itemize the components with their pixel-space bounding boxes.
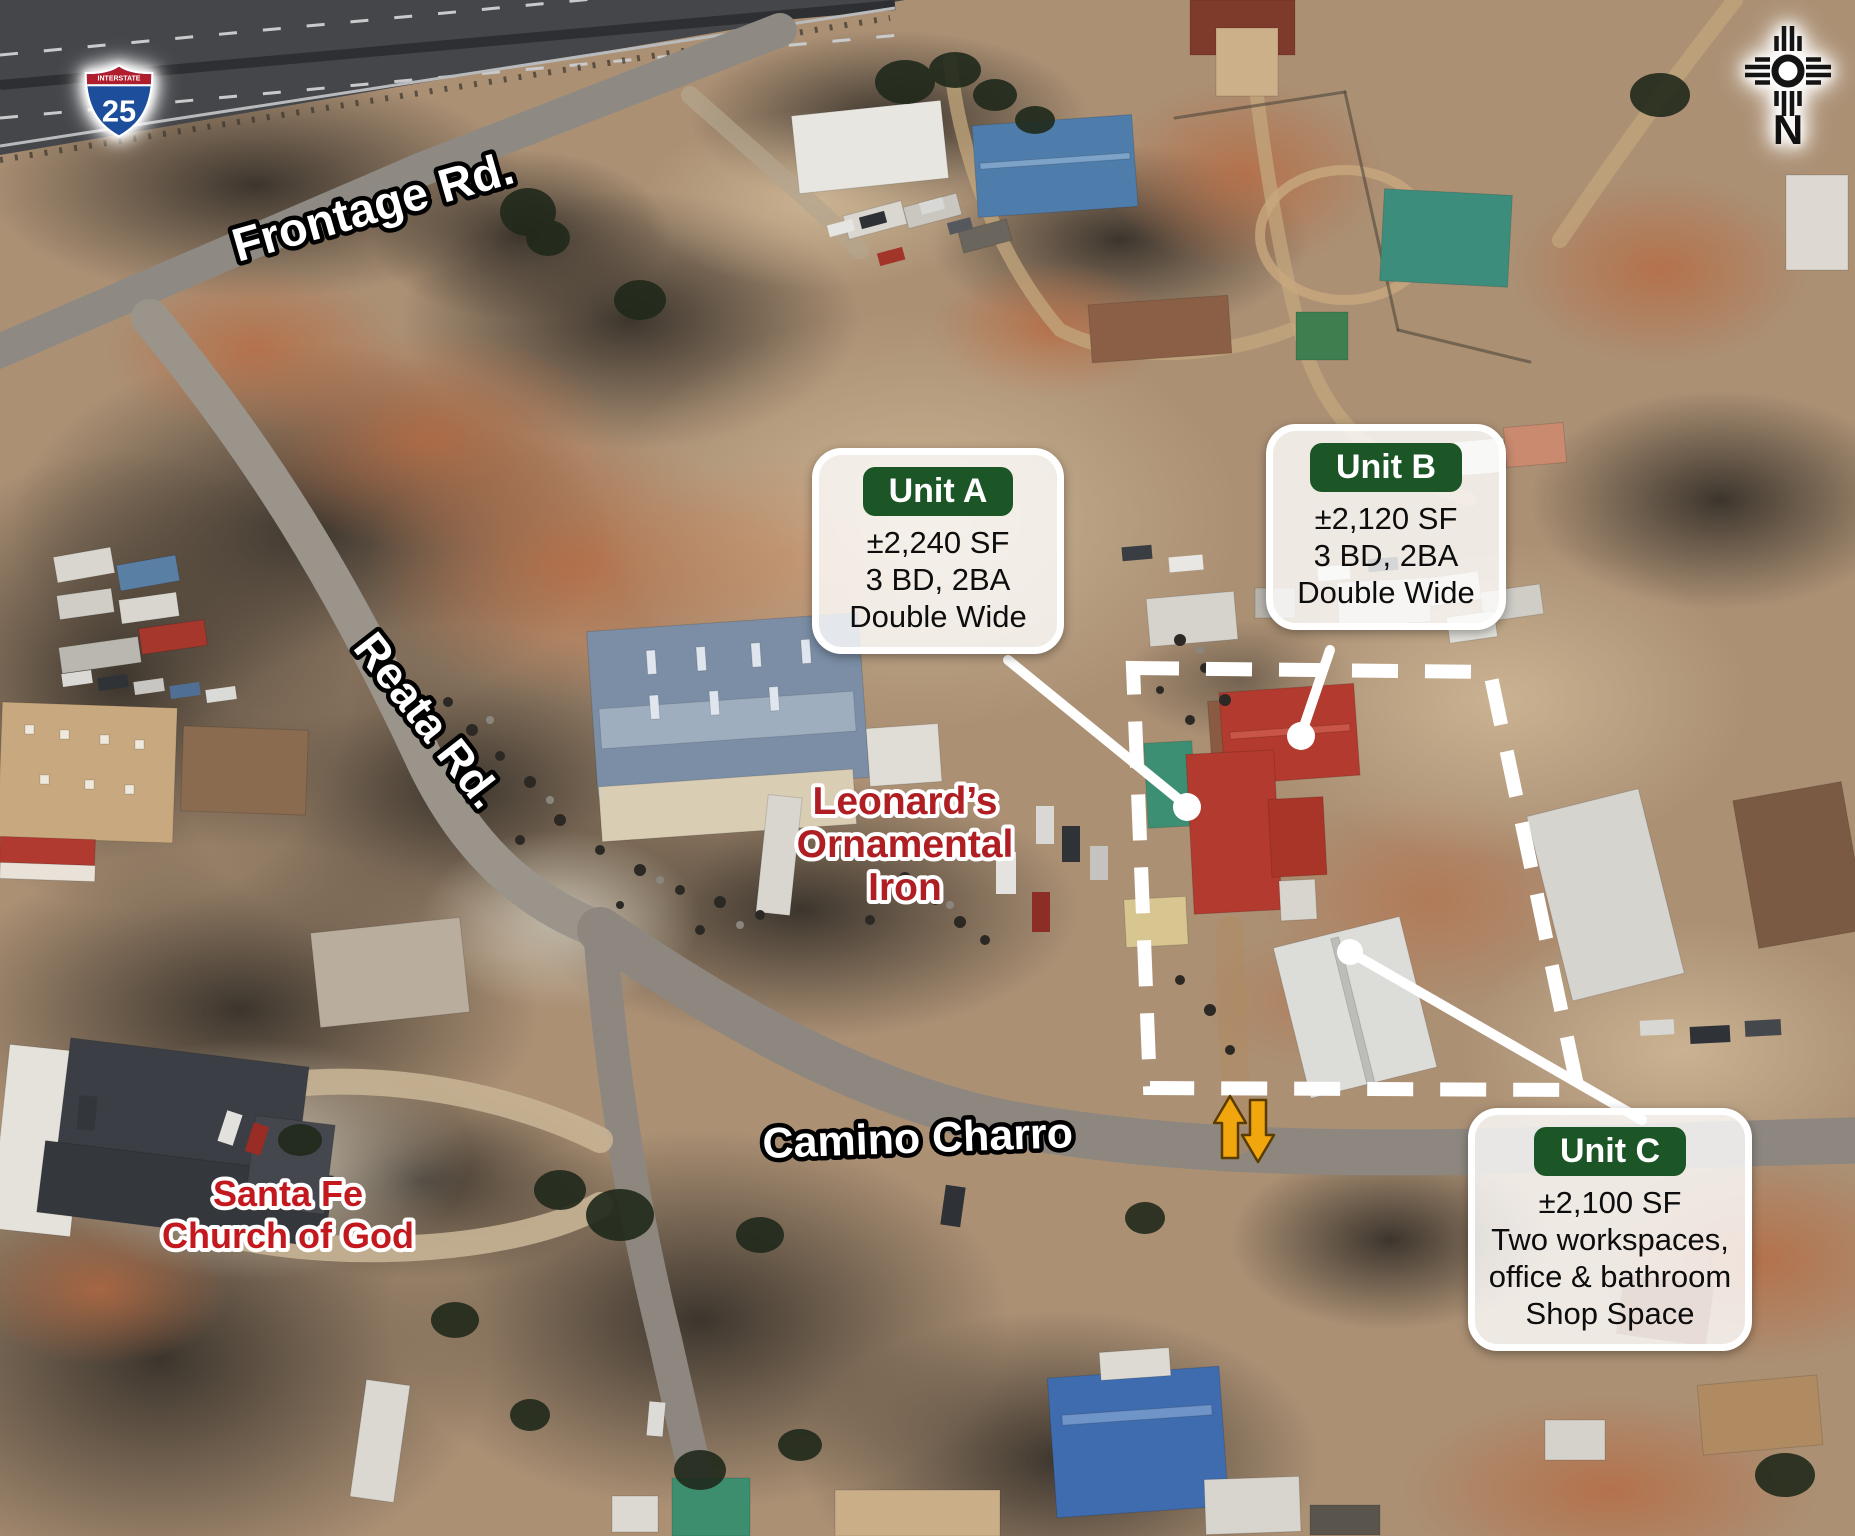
callout-unit-a-title: Unit A (863, 467, 1014, 516)
unit-a-marker (1173, 793, 1201, 821)
callout-unit-c-title: Unit C (1534, 1127, 1686, 1176)
callout-unit-b-title: Unit B (1310, 443, 1462, 492)
callout-unit-c-sf: ±2,100 SF (1487, 1184, 1733, 1221)
callout-unit-b-type: Double Wide (1285, 574, 1487, 611)
church-line-2: Church of God (162, 1215, 414, 1256)
callout-unit-a-type: Double Wide (831, 598, 1045, 635)
callout-unit-a-bed-bath: 3 BD, 2BA (831, 561, 1045, 598)
leonards-line-1: Leonard’s (813, 780, 998, 823)
callout-unit-c-shop: Shop Space (1487, 1295, 1733, 1332)
callout-unit-a: Unit A ±2,240 SF 3 BD, 2BA Double Wide (812, 448, 1064, 654)
callout-unit-b-bed-bath: 3 BD, 2BA (1285, 537, 1487, 574)
callout-unit-c-workspaces: Two workspaces, (1487, 1221, 1733, 1258)
callout-unit-b: Unit B ±2,120 SF 3 BD, 2BA Double Wide (1266, 424, 1506, 630)
shield-route-number: 25 (102, 93, 136, 128)
callout-unit-c: Unit C ±2,100 SF Two workspaces, office … (1468, 1108, 1752, 1351)
callout-unit-a-sf: ±2,240 SF (831, 524, 1045, 561)
unit-b-marker (1287, 722, 1315, 750)
callout-unit-c-office: office & bathroom (1487, 1258, 1733, 1295)
zia-sun-icon (1745, 26, 1831, 116)
aerial-map: Frontage Rd. Reata Rd. Camino Charro Leo… (0, 0, 1855, 1536)
interstate-25-shield: INTERSTATE 25 (84, 64, 154, 138)
shield-interstate-text: INTERSTATE (98, 76, 141, 83)
unit-c-marker (1337, 939, 1363, 965)
compass-north-letter: N (1773, 106, 1803, 146)
callout-unit-b-sf: ±2,120 SF (1285, 500, 1487, 537)
north-compass: N (1732, 14, 1844, 146)
church-line-1: Santa Fe (213, 1173, 363, 1214)
leonards-line-3: Iron (868, 866, 942, 909)
shield-divider (84, 84, 154, 86)
leonards-line-2: Ornamental (797, 823, 1014, 866)
